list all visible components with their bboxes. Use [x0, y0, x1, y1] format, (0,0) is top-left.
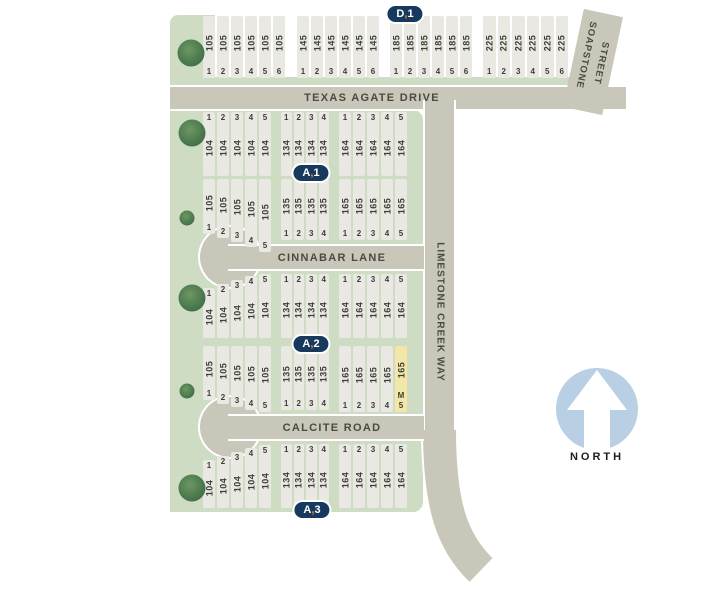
- block-number: 164: [393, 454, 410, 506]
- lot-block185-lot4[interactable]: 1854: [432, 16, 444, 78]
- lot-block104-lot2[interactable]: 2104: [217, 284, 229, 338]
- block-number: 105: [257, 348, 274, 402]
- lot-number: 4: [322, 114, 326, 122]
- lot-number: 5: [263, 447, 267, 455]
- lot-block185-lot6[interactable]: 1856: [460, 16, 472, 78]
- lot-number: 4: [249, 400, 253, 408]
- lot-number: 4: [385, 230, 389, 238]
- lot-number: 3: [309, 446, 313, 454]
- lot-block105-lot5[interactable]: 1055: [259, 346, 271, 412]
- lot-number: 3: [235, 114, 239, 122]
- lot-block165-lot1[interactable]: 1651: [339, 346, 351, 412]
- lot-number: 3: [235, 454, 239, 462]
- lot-number: 1: [284, 446, 288, 454]
- lot-number: 1: [343, 446, 347, 454]
- lot-block105-lot1[interactable]: 1051: [203, 179, 215, 234]
- lot-block105-lot1[interactable]: 1051: [203, 16, 215, 78]
- block-number: 165: [393, 348, 410, 392]
- lot-block225-lot3[interactable]: 2253: [512, 16, 525, 78]
- lot-number: 5: [399, 230, 403, 238]
- block-number: 225: [553, 18, 570, 68]
- lot-number: 3: [516, 68, 520, 76]
- lot-number: 5: [263, 114, 267, 122]
- lot-block164-lot1[interactable]: 1164: [339, 444, 351, 508]
- lot-number: 3: [371, 276, 375, 284]
- lot-block165-lot5[interactable]: 1655: [395, 179, 407, 240]
- lot-number: 4: [249, 114, 253, 122]
- tree-icon: [179, 475, 206, 502]
- lot-number: 6: [464, 68, 468, 76]
- lot-number: 4: [385, 114, 389, 122]
- lot-number: 4: [531, 68, 535, 76]
- lot-block165-lot5[interactable]: 165M5: [395, 346, 407, 412]
- lot-number: 1: [343, 230, 347, 238]
- lot-number: 1: [207, 390, 211, 398]
- block-number: 134: [315, 454, 332, 506]
- lot-number: 3: [371, 230, 375, 238]
- lot-number: 5: [263, 68, 267, 76]
- lot-block105-lot3[interactable]: 1053: [231, 346, 243, 407]
- lot-block185-lot5[interactable]: 1855: [446, 16, 458, 78]
- lot-number: 3: [371, 402, 375, 410]
- lot-number: 3: [235, 68, 239, 76]
- section-badge-D1: D,1: [385, 4, 424, 24]
- lot-block164-lot4[interactable]: 4164: [381, 274, 393, 338]
- lot-number: 1: [343, 402, 347, 410]
- lot-number: 2: [297, 114, 301, 122]
- lot-number: 5: [263, 402, 267, 410]
- lot-block145-lot4[interactable]: 1454: [339, 16, 351, 78]
- lot-block145-lot3[interactable]: 1453: [325, 16, 337, 78]
- lot-block185-lot2[interactable]: 1852: [404, 16, 416, 78]
- lot-number: 5: [399, 402, 403, 410]
- lot-number: 2: [315, 68, 319, 76]
- lot-number: 1: [343, 114, 347, 122]
- lot-number: 6: [560, 68, 564, 76]
- lot-number: 5: [263, 242, 267, 250]
- lot-number: 4: [249, 68, 253, 76]
- lot-number: 4: [436, 68, 440, 76]
- block-number: 105: [271, 18, 288, 68]
- lot-number: 2: [221, 114, 225, 122]
- lot-block225-lot2[interactable]: 2252: [498, 16, 511, 78]
- lot-block105-lot2[interactable]: 1052: [217, 346, 229, 404]
- lot-number: 1: [301, 68, 305, 76]
- lot-block105-lot2[interactable]: 1052: [217, 179, 229, 238]
- lot-number: 3: [422, 68, 426, 76]
- lot-number: 1: [207, 290, 211, 298]
- block-number: 105: [257, 181, 274, 242]
- lot-number: 2: [357, 276, 361, 284]
- lot-number: 2: [221, 286, 225, 294]
- north-label: NORTH: [570, 451, 624, 463]
- lot-number: 2: [502, 68, 506, 76]
- lot-block164-lot4[interactable]: 4164: [381, 112, 393, 176]
- lot-block225-lot4[interactable]: 2254: [527, 16, 540, 78]
- lot-block145-lot6[interactable]: 1456: [367, 16, 379, 78]
- lot-block164-lot5[interactable]: 5164: [395, 274, 407, 338]
- block-number: 135: [315, 181, 332, 230]
- lot-block164-lot2[interactable]: 2164: [353, 112, 365, 176]
- lot-number: 2: [297, 230, 301, 238]
- block-number: 165: [393, 181, 410, 230]
- lot-number: 1: [487, 68, 491, 76]
- block-number: 145: [365, 18, 382, 68]
- lot-number: 4: [249, 278, 253, 286]
- lot-block104-lot4[interactable]: 4104: [245, 276, 257, 338]
- lot-block105-lot4[interactable]: 1054: [245, 179, 257, 247]
- lot-block104-lot4[interactable]: 4104: [245, 448, 257, 508]
- lot-number: 4: [385, 276, 389, 284]
- lot-block104-lot4[interactable]: 4104: [245, 112, 257, 176]
- lot-number: 2: [221, 228, 225, 236]
- lot-number: 5: [399, 446, 403, 454]
- lot-number: 2: [297, 446, 301, 454]
- lot-number: 5: [263, 276, 267, 284]
- tree-icon: [179, 285, 206, 312]
- lot-block135-lot4[interactable]: 1354: [319, 346, 330, 410]
- block-number: 134: [315, 284, 332, 336]
- lot-block225-lot6[interactable]: 2256: [556, 16, 569, 78]
- lot-block164-lot3[interactable]: 3164: [367, 274, 379, 338]
- lot-block164-lot5[interactable]: 5164: [395, 444, 407, 508]
- lot-number: 2: [297, 276, 301, 284]
- model-home-marker: M: [398, 392, 405, 400]
- lot-block104-lot3[interactable]: 3104: [231, 452, 243, 508]
- lot-number: 4: [385, 402, 389, 410]
- lot-number: 4: [322, 446, 326, 454]
- lot-number: 4: [322, 400, 326, 408]
- lot-number: 1: [284, 230, 288, 238]
- lot-number: 3: [235, 397, 239, 405]
- lot-block185-lot3[interactable]: 1853: [418, 16, 430, 78]
- lot-number: 3: [235, 232, 239, 240]
- block-number: 185: [458, 18, 475, 68]
- lot-block165-lot3[interactable]: 1653: [367, 179, 379, 240]
- lot-number: 1: [343, 276, 347, 284]
- lot-number: 1: [207, 462, 211, 470]
- tree-icon: [180, 384, 195, 399]
- lot-block225-lot5[interactable]: 2255: [541, 16, 554, 78]
- lot-block225-lot1[interactable]: 2251: [483, 16, 496, 78]
- lot-block164-lot3[interactable]: 3164: [367, 444, 379, 508]
- lot-block135-lot4[interactable]: 1354: [319, 179, 330, 240]
- lot-number: 3: [309, 276, 313, 284]
- tree-icon: [179, 120, 206, 147]
- tree-icon: [178, 40, 205, 67]
- lot-number: 4: [343, 68, 347, 76]
- lot-block165-lot2[interactable]: 1652: [353, 346, 365, 412]
- lot-number: 1: [394, 68, 398, 76]
- lot-number: 2: [357, 446, 361, 454]
- lot-number: 2: [357, 114, 361, 122]
- lot-number: 5: [450, 68, 454, 76]
- lot-number: 3: [309, 400, 313, 408]
- lot-block165-lot3[interactable]: 1653: [367, 346, 379, 412]
- lot-block104-lot3[interactable]: 3104: [231, 112, 243, 176]
- lot-block164-lot2[interactable]: 2164: [353, 444, 365, 508]
- block-number: 104: [257, 284, 274, 336]
- lot-block145-lot2[interactable]: 1452: [311, 16, 323, 78]
- block-number: 104: [257, 122, 274, 174]
- lot-block104-lot5[interactable]: 5104: [259, 445, 271, 508]
- lot-number: 5: [545, 68, 549, 76]
- section-badge-A3: A,3: [292, 500, 331, 520]
- lot-number: 5: [399, 114, 403, 122]
- lot-number: 4: [385, 446, 389, 454]
- block-number: 164: [393, 122, 410, 174]
- street-label-limestone: LIMESTONE CREEK WAY: [435, 242, 446, 382]
- lot-block105-lot4[interactable]: 1054: [245, 346, 257, 410]
- lot-number: 1: [284, 114, 288, 122]
- lot-block105-lot5[interactable]: 1055: [259, 179, 271, 252]
- lot-block104-lot2[interactable]: 2104: [217, 456, 229, 508]
- street-label-calcite: CALCITE ROAD: [283, 422, 382, 434]
- lot-number: 2: [408, 68, 412, 76]
- lot-number: 1: [284, 400, 288, 408]
- block-number: 135: [315, 348, 332, 400]
- lot-block105-lot6[interactable]: 1056: [273, 16, 285, 78]
- lot-block164-lot3[interactable]: 3164: [367, 112, 379, 176]
- lot-number: 2: [221, 458, 225, 466]
- lot-number: 1: [207, 68, 211, 76]
- lot-number: 3: [371, 446, 375, 454]
- lot-number: 4: [249, 450, 253, 458]
- lot-block134-lot4[interactable]: 4134: [319, 274, 330, 338]
- lot-block164-lot2[interactable]: 2164: [353, 274, 365, 338]
- lot-block104-lot2[interactable]: 2104: [217, 112, 229, 176]
- lot-block165-lot4[interactable]: 1654: [381, 179, 393, 240]
- lot-number: 2: [357, 402, 361, 410]
- lot-number: 4: [322, 230, 326, 238]
- lot-block105-lot5[interactable]: 1055: [259, 16, 271, 78]
- lot-number: 5: [399, 276, 403, 284]
- lot-number: 6: [277, 68, 281, 76]
- lot-block104-lot1[interactable]: 1104: [203, 112, 215, 176]
- lot-number: 2: [357, 230, 361, 238]
- lot-block185-lot1[interactable]: 1851: [390, 16, 402, 78]
- lot-number: 1: [284, 276, 288, 284]
- lot-number: 1: [207, 224, 211, 232]
- lot-number: 3: [371, 114, 375, 122]
- block-number: 164: [393, 284, 410, 336]
- section-badge-A2: A,2: [291, 334, 330, 354]
- lot-block164-lot1[interactable]: 1164: [339, 274, 351, 338]
- lot-number: 2: [221, 394, 225, 402]
- lot-number: 6: [371, 68, 375, 76]
- lot-block105-lot4[interactable]: 1054: [245, 16, 257, 78]
- street-label-cinnabar: CINNABAR LANE: [278, 252, 387, 264]
- lot-number: 2: [221, 68, 225, 76]
- tree-icon: [180, 211, 195, 226]
- lot-block104-lot3[interactable]: 3104: [231, 280, 243, 338]
- lot-block164-lot1[interactable]: 1164: [339, 112, 351, 176]
- lot-number: 2: [297, 400, 301, 408]
- lot-block105-lot3[interactable]: 1053: [231, 179, 243, 242]
- lot-number: 3: [309, 230, 313, 238]
- site-map: TEXAS AGATE DRIVE CINNABAR LANE CALCITE …: [0, 0, 724, 592]
- block-number: 104: [257, 455, 274, 506]
- lot-number: 3: [235, 282, 239, 290]
- lot-block105-lot2[interactable]: 1052: [217, 16, 229, 78]
- lot-number: 5: [357, 68, 361, 76]
- lot-block165-lot4[interactable]: 1654: [381, 346, 393, 412]
- lot-block145-lot5[interactable]: 1455: [353, 16, 365, 78]
- lot-block145-lot1[interactable]: 1451: [297, 16, 309, 78]
- street-label-texas-agate: TEXAS AGATE DRIVE: [304, 92, 440, 104]
- section-badge-A1: A,1: [291, 163, 330, 183]
- lot-block165-lot1[interactable]: 1651: [339, 179, 351, 240]
- lot-block104-lot5[interactable]: 5104: [259, 274, 271, 338]
- lot-block105-lot1[interactable]: 1051: [203, 346, 215, 400]
- lot-block165-lot2[interactable]: 1652: [353, 179, 365, 240]
- lot-number: 1: [207, 114, 211, 122]
- lot-number: 4: [249, 237, 253, 245]
- lot-number: 3: [309, 114, 313, 122]
- lot-block105-lot3[interactable]: 1053: [231, 16, 243, 78]
- lot-block104-lot5[interactable]: 5104: [259, 112, 271, 176]
- lot-block134-lot4[interactable]: 4134: [319, 444, 330, 508]
- lot-number: 3: [329, 68, 333, 76]
- lot-number: 4: [322, 276, 326, 284]
- lot-block164-lot5[interactable]: 5164: [395, 112, 407, 176]
- lot-block164-lot4[interactable]: 4164: [381, 444, 393, 508]
